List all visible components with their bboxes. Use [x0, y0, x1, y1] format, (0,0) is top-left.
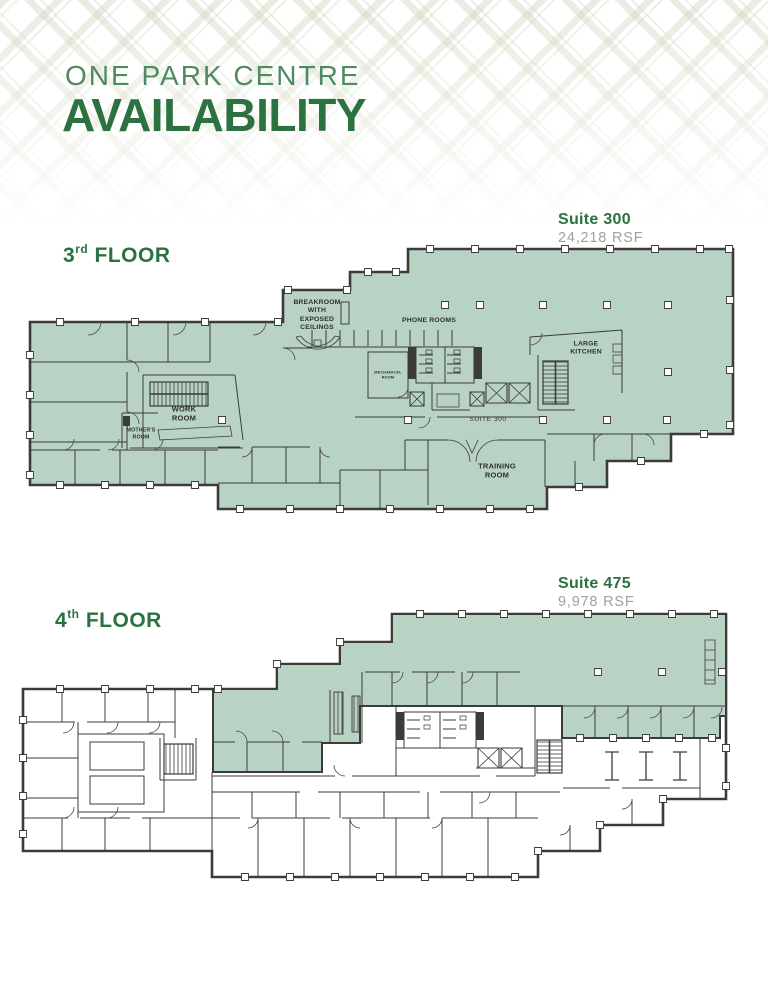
floor3-room-label-mothers-room: MOTHER'S ROOM	[127, 428, 156, 441]
floor4-plan	[0, 600, 768, 900]
floor3-room-label-phone-rooms: PHONE ROOMS	[402, 317, 456, 325]
floor4-outline	[23, 614, 726, 877]
floor3-room-label-breakroom: BREAKROOM WITH EXPOSED CEILINGS	[293, 299, 340, 333]
floor3-room-label-work-room: WORK ROOM	[172, 405, 197, 424]
floor3-suite-tag: SUITE 300	[469, 416, 506, 424]
floor4-suite-name: Suite 475	[558, 575, 635, 593]
page-title: AVAILABILITY	[62, 88, 366, 142]
floor3-room-label-training-room: TRAINING ROOM	[478, 462, 516, 481]
floor3-room-label-large-kitchen: LARGE KITCHEN	[570, 341, 602, 358]
availability-flyer: ONE PARK CENTRE AVAILABILITY 3rd FLOOR S…	[0, 0, 768, 994]
floor3-room-label-mechanical: MECHANICAL ROOM	[374, 370, 402, 379]
